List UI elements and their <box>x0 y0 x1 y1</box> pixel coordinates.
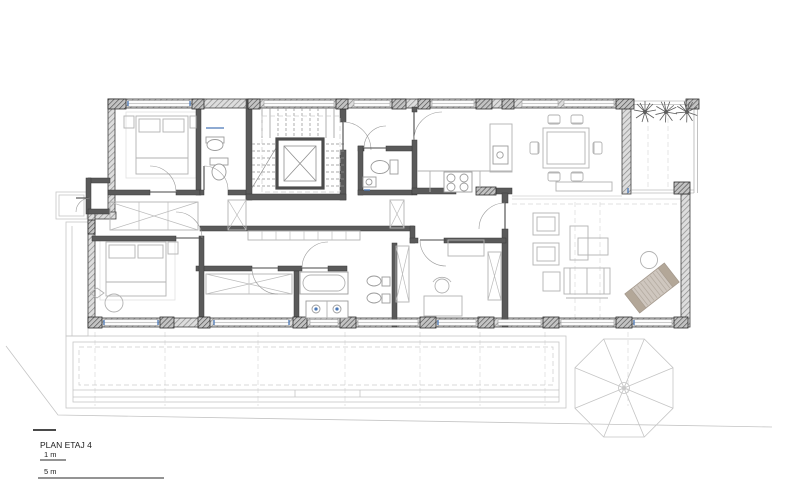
toilet <box>212 164 226 180</box>
hall-closet-band <box>110 202 198 230</box>
scale-5m-label: 5 m <box>44 467 57 476</box>
chair <box>530 142 539 154</box>
closet <box>228 200 246 230</box>
wc <box>363 160 398 190</box>
kitchen <box>417 124 512 192</box>
elevator <box>277 139 323 188</box>
corridor-wardrobe <box>248 231 360 240</box>
balcony <box>56 192 87 219</box>
south-terrace-deck <box>66 336 566 408</box>
rug-round <box>105 294 123 312</box>
office-closet-right <box>488 252 501 300</box>
nightstand <box>124 116 134 128</box>
palm-tree-symbol <box>652 98 680 125</box>
closet <box>390 200 404 228</box>
toilet <box>367 276 381 286</box>
coffee-table <box>578 238 608 255</box>
round-side-table <box>641 252 658 269</box>
double-bed <box>106 242 166 296</box>
floor-plan-drawing: PLAN ETAJ 4 1 m 5 m <box>0 0 800 490</box>
double-bed <box>136 116 188 174</box>
desk <box>424 296 462 316</box>
nightstand <box>190 116 196 128</box>
scale-1m-label: 1 m <box>44 450 57 459</box>
toilet <box>371 161 389 174</box>
chair <box>593 142 602 154</box>
dressing-wardrobe <box>206 274 292 294</box>
plan-title: PLAN ETAJ 4 <box>40 440 92 450</box>
nightstand <box>168 242 178 254</box>
chair <box>571 172 583 181</box>
office <box>424 240 484 316</box>
side-table <box>543 272 560 291</box>
chair <box>548 172 560 181</box>
dining-area <box>530 115 612 191</box>
chair <box>548 115 560 124</box>
office-closet-left <box>396 246 409 302</box>
living-room <box>533 213 679 313</box>
bathroom-1 <box>206 128 228 180</box>
sideboard <box>556 182 612 191</box>
title-block: PLAN ETAJ 4 1 m 5 m <box>38 440 164 478</box>
bidet <box>367 293 381 303</box>
stair-core <box>252 108 344 192</box>
washbasin <box>207 140 223 151</box>
bedroom-1 <box>124 116 196 174</box>
west-terrace-strip <box>66 222 88 336</box>
sun-lounger <box>625 263 679 313</box>
desk-chair <box>435 279 449 293</box>
bedroom-2 <box>90 242 178 312</box>
floor-plan-canvas: PLAN ETAJ 4 1 m 5 m <box>0 0 800 490</box>
palm-tree-symbol <box>634 101 656 122</box>
bathroom-2 <box>300 272 390 318</box>
chair <box>571 115 583 124</box>
site-boundary-line <box>6 346 772 430</box>
toilet-tank <box>390 160 398 174</box>
dining-table <box>543 128 589 168</box>
parasol-umbrella <box>575 339 673 437</box>
